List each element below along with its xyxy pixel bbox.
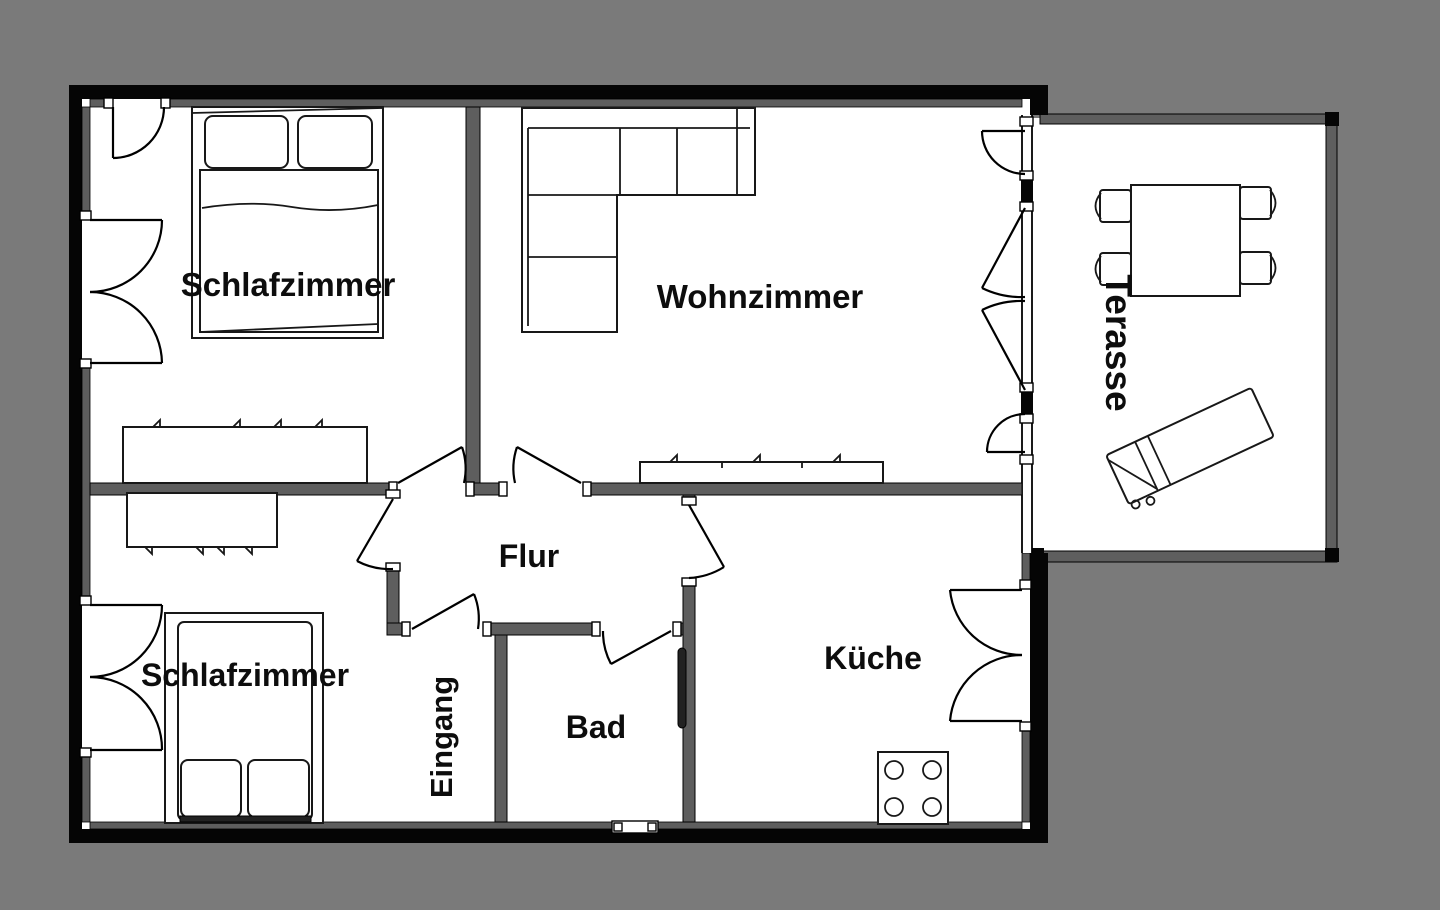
room-label-flur: Flur bbox=[499, 538, 559, 574]
stove-icon bbox=[878, 752, 948, 824]
room-label-terrasse: Terasse bbox=[1098, 274, 1139, 411]
terrace-wall-top bbox=[1040, 114, 1332, 124]
dining-table-icon bbox=[1131, 185, 1240, 296]
room-label-wohnzimmer: Wohnzimmer bbox=[657, 278, 864, 315]
chair-icon bbox=[1240, 187, 1276, 219]
double-bed-icon bbox=[192, 107, 383, 338]
wardrobe-icon bbox=[123, 420, 367, 483]
chair-icon bbox=[1096, 190, 1132, 222]
double-bed-icon bbox=[165, 613, 323, 823]
room-label-schlafzimmer-2: Schlafzimmer bbox=[141, 657, 349, 693]
room-label-bad: Bad bbox=[566, 709, 626, 745]
terrace-corner-cap-bottom bbox=[1325, 548, 1339, 562]
terrace-wall-right bbox=[1326, 114, 1337, 562]
radiator-icon bbox=[678, 648, 686, 728]
terrace-wall-bottom bbox=[1032, 551, 1337, 562]
terrace: Terasse bbox=[1032, 112, 1339, 562]
door-threshold bbox=[612, 821, 658, 833]
floor-plan: Terasse bbox=[0, 0, 1440, 910]
room-label-eingang: Eingang bbox=[424, 676, 459, 798]
dresser-icon bbox=[127, 493, 277, 554]
room-label-kueche: Küche bbox=[824, 640, 922, 676]
terrace-corner-cap-top bbox=[1325, 112, 1339, 126]
chair-icon bbox=[1240, 252, 1276, 284]
room-label-schlafzimmer-1: Schlafzimmer bbox=[181, 266, 396, 303]
